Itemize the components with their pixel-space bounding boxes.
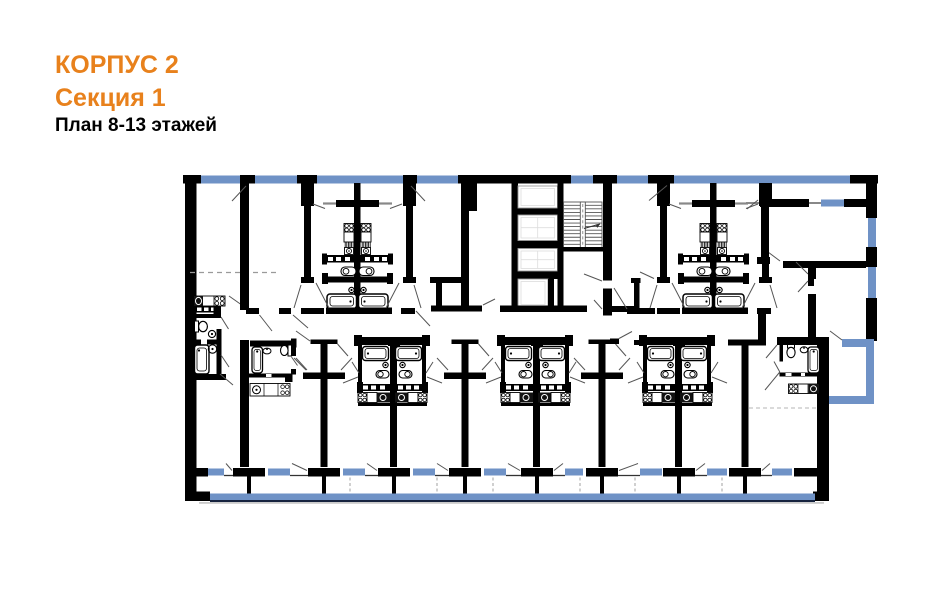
svg-text:План 8-13 этажей: План 8-13 этажей (55, 115, 217, 136)
svg-text:Секция 1: Секция 1 (55, 84, 166, 112)
svg-text:КОРПУС 2: КОРПУС 2 (55, 51, 179, 79)
